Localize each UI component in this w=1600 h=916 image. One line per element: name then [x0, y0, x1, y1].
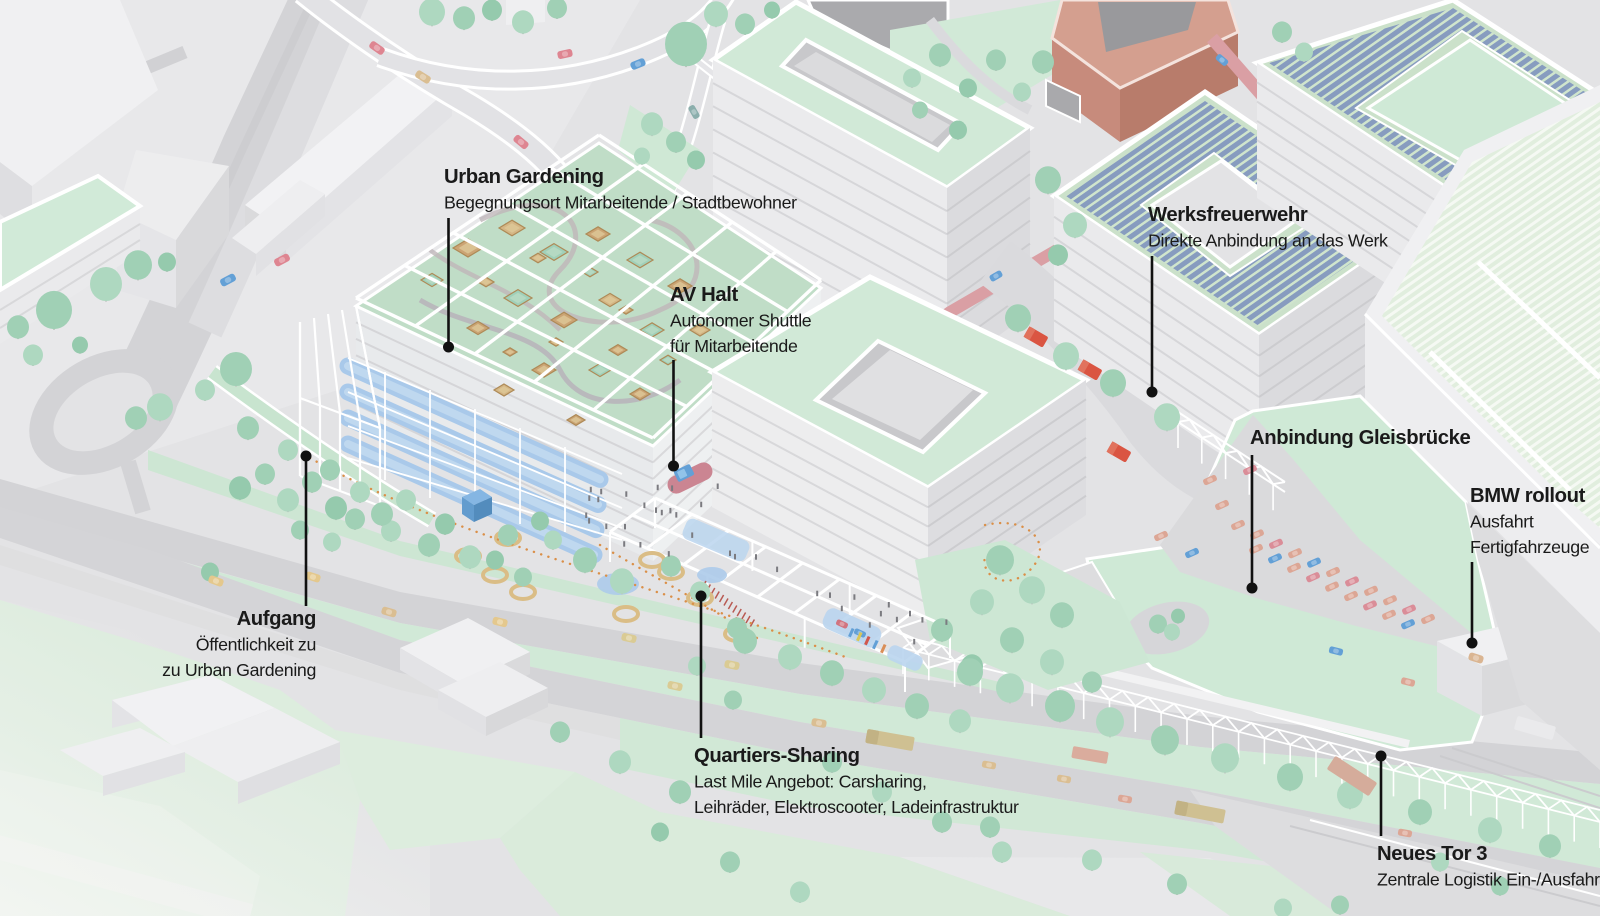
svg-text:Quartiers-Sharing: Quartiers-Sharing — [694, 745, 860, 767]
svg-text:Zentrale Logistik Ein-/Ausfahr: Zentrale Logistik Ein-/Ausfahrt — [1377, 870, 1600, 890]
svg-text:Last Mile Angebot: Carsharing,: Last Mile Angebot: Carsharing, — [694, 772, 927, 792]
svg-text:Direkte Anbindung an das Werk: Direkte Anbindung an das Werk — [1148, 231, 1388, 251]
svg-text:zu Urban Gardening: zu Urban Gardening — [162, 660, 316, 680]
svg-text:Leihräder, Elektroscooter, Lad: Leihräder, Elektroscooter, Ladeinfrastru… — [694, 797, 1019, 817]
svg-text:Urban Gardening: Urban Gardening — [444, 166, 604, 188]
svg-text:Aufgang: Aufgang — [237, 608, 316, 630]
svg-text:BMW rollout: BMW rollout — [1470, 485, 1586, 507]
svg-text:Begegnungsort Mitarbeitende /: Begegnungsort Mitarbeitende / Stadtbewoh… — [444, 193, 797, 213]
svg-text:für Mitarbeitende: für Mitarbeitende — [670, 336, 798, 356]
svg-text:Anbindung Gleisbrücke: Anbindung Gleisbrücke — [1250, 427, 1470, 449]
svg-text:Werksfreuerwehr: Werksfreuerwehr — [1148, 204, 1308, 226]
svg-text:Fertigfahrzeuge: Fertigfahrzeuge — [1470, 537, 1590, 557]
svg-text:Neues Tor 3: Neues Tor 3 — [1377, 843, 1487, 865]
svg-text:Autonomer Shuttle: Autonomer Shuttle — [670, 311, 812, 331]
svg-text:Öffentlichkeit zu: Öffentlichkeit zu — [196, 635, 316, 655]
svg-text:Ausfahrt: Ausfahrt — [1470, 512, 1534, 532]
svg-text:AV Halt: AV Halt — [670, 284, 738, 306]
